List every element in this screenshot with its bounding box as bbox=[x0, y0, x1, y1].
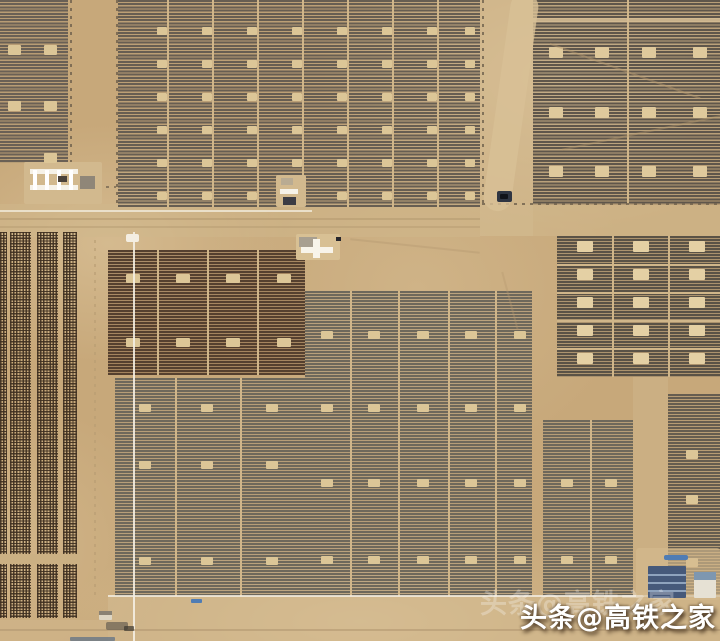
inverter-box bbox=[292, 93, 302, 101]
tire-track bbox=[0, 218, 480, 220]
panel-divider bbox=[157, 250, 159, 375]
inverter-box bbox=[368, 404, 380, 412]
panel-divider bbox=[668, 236, 670, 377]
substation-post bbox=[33, 170, 37, 190]
pv-array-dark-brown bbox=[108, 250, 305, 375]
panel-divider bbox=[207, 250, 209, 375]
inverter-box bbox=[686, 450, 698, 459]
inverter-box bbox=[8, 101, 21, 111]
inverter-box bbox=[427, 27, 437, 35]
corridor-track bbox=[94, 240, 96, 600]
inverter-box bbox=[202, 126, 212, 134]
inverter-box bbox=[201, 461, 213, 469]
inverter-box bbox=[689, 297, 705, 308]
inverter-box bbox=[368, 479, 380, 487]
inverter-box bbox=[417, 404, 429, 412]
panel-divider bbox=[257, 250, 259, 375]
inverter-box bbox=[202, 192, 212, 200]
watermark: 头条@高铁之家 bbox=[520, 596, 716, 635]
inverter-box bbox=[465, 60, 475, 68]
utility-line bbox=[133, 232, 135, 641]
inverter-box bbox=[277, 338, 291, 347]
inverter-box bbox=[157, 126, 167, 134]
inverter-box bbox=[292, 126, 302, 134]
inverter-box bbox=[689, 353, 705, 364]
pv-array-top-left bbox=[0, 0, 68, 163]
inverter-box bbox=[633, 325, 649, 336]
satellite-photo-solar-farm: 头条@高铁之家 头条@高铁之家 bbox=[0, 0, 720, 641]
inverter-box bbox=[202, 93, 212, 101]
inverter-box bbox=[689, 269, 705, 280]
inverter-box bbox=[465, 93, 475, 101]
inverter-box bbox=[633, 269, 649, 280]
pv-array-gray-main bbox=[305, 291, 532, 596]
panel-divider bbox=[240, 378, 242, 596]
substation-post bbox=[69, 170, 73, 190]
inverter-box bbox=[633, 241, 649, 252]
inverter-box bbox=[321, 556, 333, 564]
inverter-box bbox=[337, 27, 347, 35]
inverter-box bbox=[382, 126, 392, 134]
inverter-box bbox=[465, 404, 477, 412]
fence-line bbox=[482, 0, 484, 204]
blue-edge-strip bbox=[70, 637, 115, 641]
inverter-box bbox=[465, 479, 477, 487]
pv-array-cell-grid bbox=[557, 236, 720, 377]
inverter-box bbox=[595, 47, 609, 58]
inverter-box bbox=[292, 60, 302, 68]
pv-array-gray-right bbox=[543, 420, 633, 596]
inverter-box bbox=[277, 274, 291, 283]
panel-divider bbox=[557, 292, 720, 294]
inverter-box bbox=[139, 461, 151, 469]
inverter-box bbox=[321, 479, 333, 487]
inverter-box bbox=[44, 101, 57, 111]
panel-divider bbox=[557, 320, 720, 322]
inverter-box bbox=[382, 93, 392, 101]
inverter-box bbox=[417, 331, 429, 339]
inverter-box bbox=[514, 404, 526, 412]
inverter-box bbox=[417, 556, 429, 564]
inverter-box bbox=[577, 269, 593, 280]
panel-divider bbox=[627, 0, 629, 205]
vehicle-dark-cab bbox=[500, 194, 508, 199]
inverter-box bbox=[577, 353, 593, 364]
panel-gap-line bbox=[533, 18, 720, 22]
inverter-box bbox=[577, 241, 593, 252]
inverter-box bbox=[176, 338, 190, 347]
inverter-box bbox=[514, 556, 526, 564]
panel-divider bbox=[167, 0, 169, 207]
substation-box bbox=[80, 176, 95, 189]
inverter-box bbox=[382, 192, 392, 200]
inverter-box bbox=[226, 338, 240, 347]
inverter-box bbox=[247, 159, 257, 167]
inverter-box bbox=[266, 461, 278, 469]
inverter-box bbox=[427, 126, 437, 134]
substation-dark-unit bbox=[58, 176, 67, 182]
sand-crack bbox=[350, 238, 479, 254]
panel-divider bbox=[350, 291, 352, 596]
substation-post bbox=[45, 170, 49, 190]
inverter-box bbox=[633, 353, 649, 364]
inverter-box bbox=[157, 27, 167, 35]
inverter-box bbox=[642, 107, 656, 118]
inverter-box bbox=[465, 27, 475, 35]
inverter-box bbox=[201, 557, 213, 565]
inverter-box bbox=[577, 297, 593, 308]
inverter-box bbox=[382, 159, 392, 167]
inverter-box bbox=[465, 126, 475, 134]
inverter-box bbox=[514, 331, 526, 339]
inverter-box bbox=[247, 27, 257, 35]
panel-divider bbox=[175, 378, 177, 596]
inverter-box bbox=[337, 93, 347, 101]
inverter-box bbox=[465, 556, 477, 564]
inverter-box bbox=[292, 27, 302, 35]
inverter-box bbox=[595, 107, 609, 118]
inverter-box bbox=[693, 47, 707, 58]
fence-line bbox=[70, 0, 72, 163]
inverter-box bbox=[605, 556, 617, 564]
inverter-box bbox=[465, 192, 475, 200]
building-blue-roof bbox=[694, 572, 716, 580]
pole-white-mark bbox=[126, 234, 139, 242]
panel-divider bbox=[437, 0, 439, 207]
panel-divider bbox=[212, 0, 214, 207]
inverter-box bbox=[561, 479, 573, 487]
inverter-box bbox=[202, 60, 212, 68]
inverter-box bbox=[157, 159, 167, 167]
inverter-box bbox=[266, 404, 278, 412]
fence-line bbox=[482, 203, 720, 205]
panel-divider bbox=[257, 0, 259, 207]
inverter-box bbox=[247, 60, 257, 68]
panel-divider bbox=[557, 264, 720, 266]
panel-divider bbox=[448, 291, 450, 596]
inverter-box bbox=[368, 556, 380, 564]
switchyard-dark-dot bbox=[336, 237, 341, 241]
inverter-box bbox=[689, 241, 705, 252]
inverter-box bbox=[321, 404, 333, 412]
inverter-box bbox=[247, 93, 257, 101]
inverter-box bbox=[549, 166, 563, 177]
inverter-box bbox=[44, 45, 57, 55]
tire-track bbox=[0, 226, 480, 228]
road-band-right-sand bbox=[480, 205, 720, 236]
inverter-box bbox=[8, 45, 21, 55]
inverter-box bbox=[427, 93, 437, 101]
inverter-box bbox=[139, 404, 151, 412]
panel-divider bbox=[612, 236, 614, 377]
inverter-box bbox=[368, 331, 380, 339]
vehicle-blue bbox=[664, 555, 688, 560]
inverter-box bbox=[321, 331, 333, 339]
inverter-box bbox=[577, 325, 593, 336]
inverter-box bbox=[247, 126, 257, 134]
inverter-box bbox=[202, 27, 212, 35]
inverter-box bbox=[337, 192, 347, 200]
inverter-box bbox=[247, 192, 257, 200]
fence-line bbox=[116, 0, 118, 206]
inverter-box bbox=[157, 192, 167, 200]
inverter-box bbox=[382, 27, 392, 35]
ground-debris bbox=[124, 626, 134, 631]
pv-shed-stripe bbox=[648, 574, 686, 576]
panel-divider bbox=[392, 0, 394, 207]
pv-array-top-right bbox=[533, 0, 720, 205]
inverter-box bbox=[44, 153, 57, 163]
panel-divider bbox=[495, 291, 497, 596]
inverter-box bbox=[693, 107, 707, 118]
inverter-box bbox=[427, 159, 437, 167]
switchyard-cross-v bbox=[313, 239, 320, 258]
inverter-box bbox=[693, 166, 707, 177]
inverter-box bbox=[157, 93, 167, 101]
pv-array-gray-left bbox=[115, 378, 305, 596]
inverter-box bbox=[176, 274, 190, 283]
inverter-station-bar bbox=[280, 189, 298, 194]
inverter-box bbox=[157, 60, 167, 68]
inverter-station-dark-unit bbox=[283, 197, 296, 205]
inverter-box bbox=[686, 495, 698, 504]
inverter-box bbox=[139, 557, 151, 565]
inverter-box bbox=[427, 192, 437, 200]
hut-roof bbox=[99, 611, 112, 615]
inverter-station-box bbox=[281, 178, 293, 185]
inverter-box bbox=[292, 159, 302, 167]
panel-divider bbox=[347, 0, 349, 207]
inverter-box bbox=[417, 479, 429, 487]
inverter-box bbox=[595, 166, 609, 177]
inverter-box bbox=[642, 47, 656, 58]
panel-divider bbox=[557, 348, 720, 350]
inverter-box bbox=[465, 331, 477, 339]
inverter-box bbox=[337, 126, 347, 134]
inverter-box bbox=[266, 557, 278, 565]
inverter-box bbox=[427, 60, 437, 68]
dot-array-gap bbox=[0, 554, 80, 564]
inverter-box bbox=[337, 159, 347, 167]
vehicle-blue bbox=[191, 599, 202, 603]
inverter-box bbox=[642, 166, 656, 177]
inverter-box bbox=[337, 60, 347, 68]
inverter-box bbox=[689, 325, 705, 336]
inverter-box bbox=[202, 159, 212, 167]
inverter-box bbox=[201, 404, 213, 412]
inverter-box bbox=[605, 479, 617, 487]
inverter-box bbox=[549, 107, 563, 118]
inverter-box bbox=[465, 159, 475, 167]
inverter-box bbox=[633, 297, 649, 308]
inverter-box bbox=[561, 556, 573, 564]
inverter-box bbox=[514, 479, 526, 487]
road-white-line bbox=[0, 210, 312, 212]
inverter-box bbox=[382, 60, 392, 68]
panel-divider bbox=[590, 420, 592, 596]
panel-divider bbox=[398, 291, 400, 596]
inverter-box bbox=[226, 274, 240, 283]
